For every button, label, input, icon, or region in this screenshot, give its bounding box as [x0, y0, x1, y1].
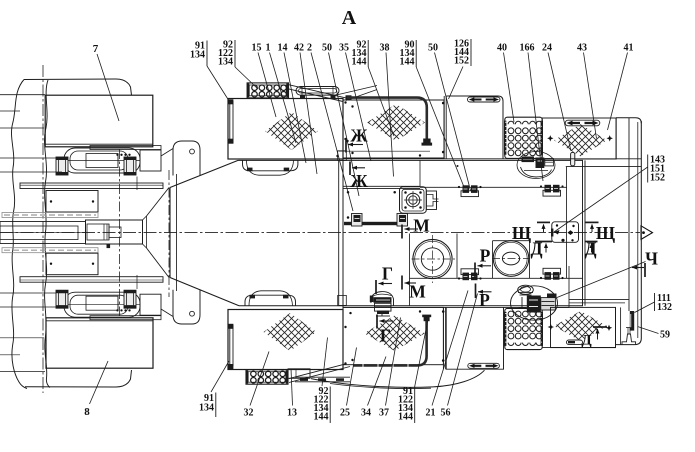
- svg-text:166: 166: [520, 43, 535, 54]
- svg-text:14: 14: [278, 43, 288, 54]
- svg-text:Г: Г: [380, 326, 391, 346]
- svg-text:Д: Д: [530, 239, 542, 259]
- svg-text:М: М: [413, 216, 430, 236]
- svg-text:59: 59: [660, 330, 670, 341]
- svg-text:50: 50: [428, 43, 438, 54]
- svg-text:А: А: [342, 7, 357, 29]
- svg-text:Г: Г: [382, 264, 393, 284]
- svg-text:24: 24: [542, 43, 552, 54]
- svg-text:Щ: Щ: [596, 223, 615, 243]
- svg-text:134: 134: [190, 50, 205, 61]
- svg-text:8: 8: [84, 406, 90, 418]
- svg-text:21: 21: [426, 408, 436, 419]
- svg-text:56: 56: [441, 408, 451, 419]
- svg-text:Ж: Ж: [350, 171, 368, 191]
- svg-text:Р: Р: [479, 290, 490, 310]
- svg-text:7: 7: [93, 43, 99, 55]
- svg-text:1: 1: [266, 43, 271, 54]
- svg-text:42: 42: [294, 43, 304, 54]
- svg-text:37: 37: [379, 408, 389, 419]
- svg-text:144: 144: [400, 57, 415, 68]
- svg-text:40: 40: [497, 43, 507, 54]
- svg-text:34: 34: [361, 408, 371, 419]
- svg-text:38: 38: [380, 43, 390, 54]
- svg-text:Ч: Ч: [645, 249, 658, 269]
- svg-text:144: 144: [398, 412, 413, 423]
- svg-text:13: 13: [287, 408, 297, 419]
- svg-text:152: 152: [650, 173, 665, 184]
- svg-text:25: 25: [340, 408, 350, 419]
- svg-text:32: 32: [244, 408, 254, 419]
- svg-text:144: 144: [314, 412, 329, 423]
- svg-text:134: 134: [199, 403, 214, 414]
- svg-text:М: М: [409, 282, 426, 302]
- svg-text:152: 152: [454, 56, 469, 67]
- svg-text:134: 134: [218, 57, 233, 68]
- svg-text:132: 132: [657, 302, 672, 313]
- svg-text:15: 15: [252, 43, 262, 54]
- svg-text:Д: Д: [581, 333, 592, 349]
- svg-text:Д: Д: [584, 239, 596, 259]
- svg-text:50: 50: [322, 43, 332, 54]
- svg-text:41: 41: [624, 43, 634, 54]
- svg-text:Щ: Щ: [512, 223, 531, 243]
- svg-text:Р: Р: [480, 246, 491, 266]
- svg-text:43: 43: [577, 43, 587, 54]
- svg-text:144: 144: [352, 57, 367, 68]
- svg-text:2: 2: [307, 43, 312, 54]
- svg-text:Ж: Ж: [350, 126, 368, 146]
- svg-text:35: 35: [339, 43, 349, 54]
